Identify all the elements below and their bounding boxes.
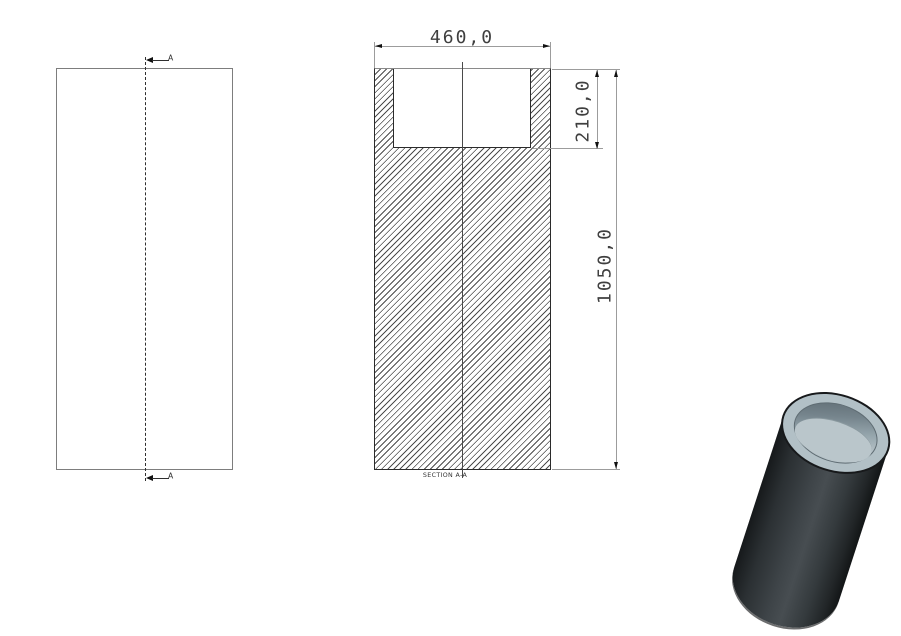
dim-depth-arrow-top-icon [595, 70, 599, 77]
dim-length-ext-bottom [552, 469, 620, 470]
dim-length-arrow-top-icon [614, 70, 618, 77]
dim-width-arrow-left-icon [375, 44, 382, 48]
cylinder-3d-render [720, 379, 901, 636]
dim-depth-arrow-bottom-icon [595, 142, 599, 149]
dim-length-arrow-bottom-icon [614, 462, 618, 469]
section-cut-line [145, 57, 146, 481]
section-arrow-top-line [152, 60, 169, 61]
dim-depth-line [597, 69, 598, 149]
section-marker-label-top: A [168, 55, 173, 64]
dim-depth-value: 210,0 [573, 66, 594, 156]
section-marker-label-bottom: A [168, 473, 173, 482]
section-centerline [462, 62, 463, 478]
drawing-canvas: A A 460,0 210,0 1050,0 SECTION A-A [0, 0, 901, 636]
section-view-title: SECTION A-A [403, 472, 487, 479]
dim-width-value: 460,0 [412, 27, 512, 48]
dim-width-arrow-right-icon [543, 44, 550, 48]
section-arrow-bottom-line [152, 478, 169, 479]
dim-length-value: 1050,0 [595, 211, 616, 321]
dim-length-line [616, 69, 617, 470]
